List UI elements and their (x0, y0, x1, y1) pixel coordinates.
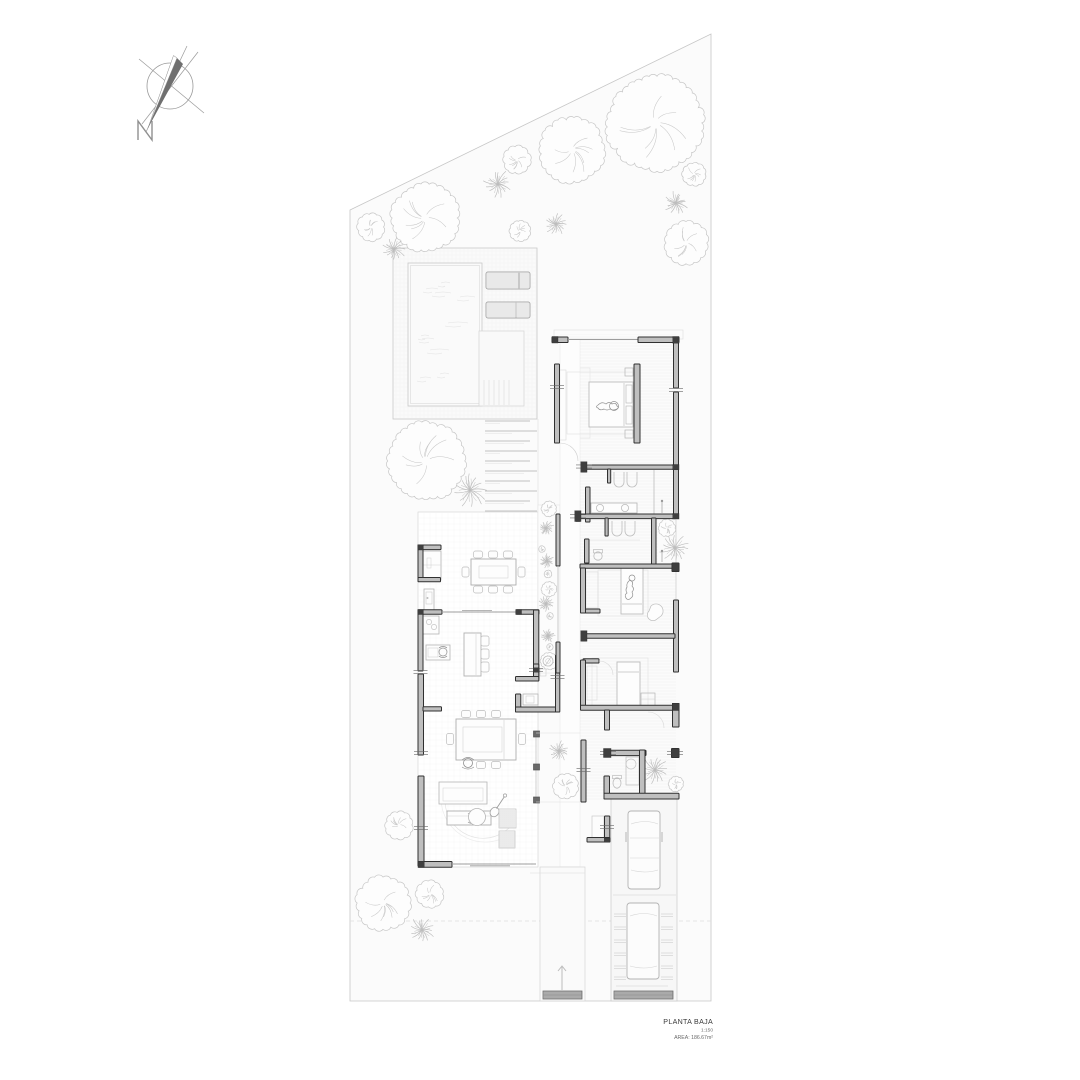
svg-text:AREA: 186.67m²: AREA: 186.67m² (674, 1035, 713, 1041)
svg-text:PLANTA BAJA: PLANTA BAJA (663, 1018, 713, 1026)
svg-text:1:150: 1:150 (701, 1028, 713, 1034)
